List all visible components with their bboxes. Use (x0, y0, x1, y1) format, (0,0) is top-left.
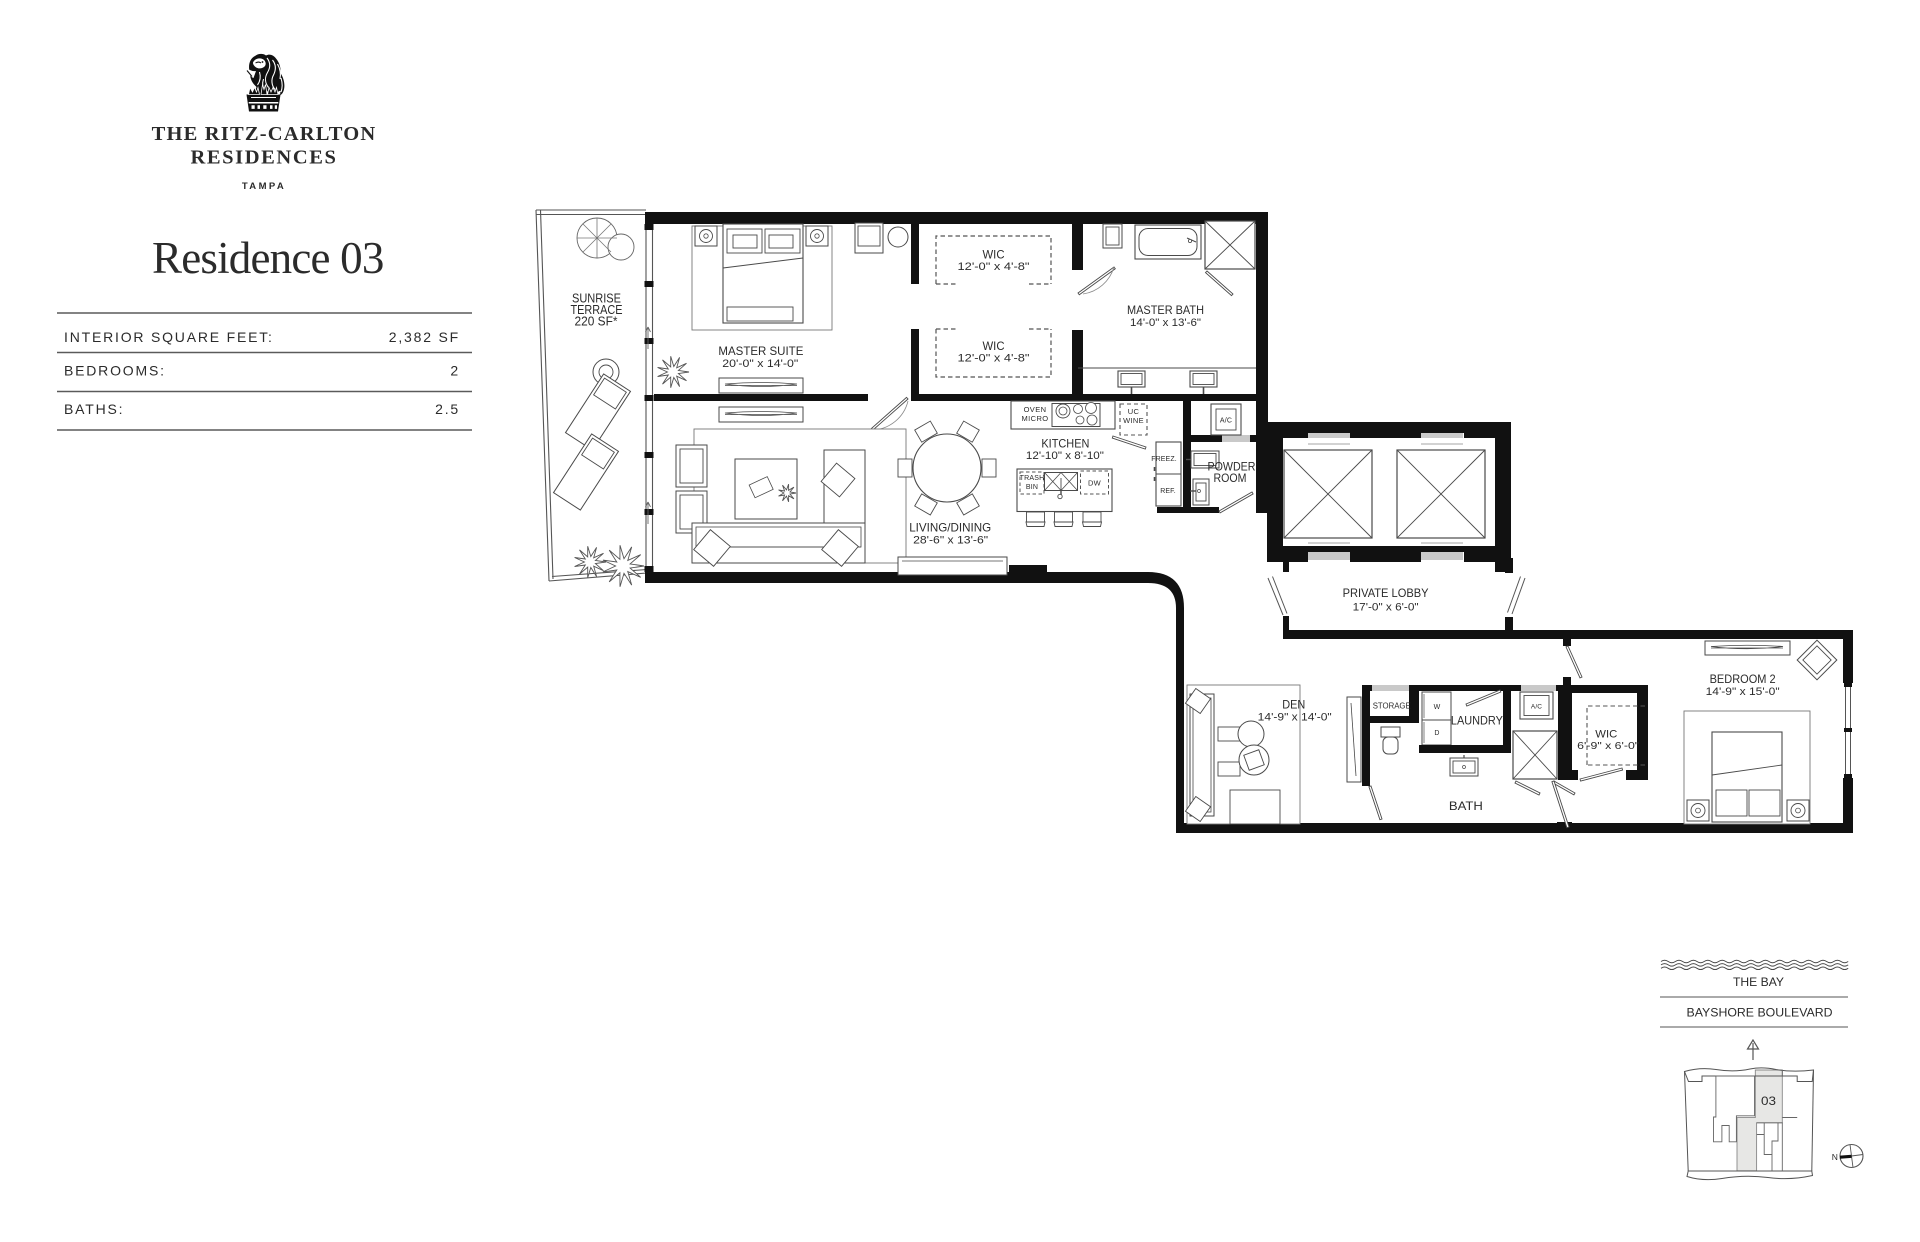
svg-text:WIC: WIC (1595, 729, 1617, 741)
svg-text:A/C: A/C (1220, 418, 1232, 425)
svg-text:UC: UC (1128, 407, 1140, 416)
svg-text:28'-6" x 13'-6": 28'-6" x 13'-6" (913, 535, 988, 547)
svg-text:MASTER BATH: MASTER BATH (1127, 303, 1204, 317)
svg-text:TAMPA: TAMPA (242, 181, 286, 192)
svg-text:BEDROOM 2: BEDROOM 2 (1710, 672, 1776, 686)
svg-text:12'-0" x 4'-8": 12'-0" x 4'-8" (958, 353, 1030, 365)
svg-text:LIVING/DINING: LIVING/DINING (909, 520, 991, 534)
svg-text:ROOM: ROOM (1214, 471, 1247, 485)
svg-text:FREEZ.: FREEZ. (1151, 456, 1177, 463)
svg-text:A/C: A/C (1531, 704, 1542, 711)
svg-text:WIC: WIC (983, 339, 1005, 353)
svg-text:03: 03 (1761, 1096, 1776, 1108)
svg-text:RESIDENCES: RESIDENCES (190, 147, 337, 169)
svg-text:BAYSHORE BOULEVARD: BAYSHORE BOULEVARD (1687, 1006, 1833, 1020)
svg-text:6'-9" x 6'-0": 6'-9" x 6'-0" (1577, 741, 1640, 752)
svg-text:14'-9" x 14'-0": 14'-9" x 14'-0" (1258, 712, 1332, 724)
svg-text:N: N (1832, 1152, 1838, 1162)
svg-text:220 SF*: 220 SF* (575, 314, 618, 329)
svg-text:2: 2 (450, 363, 460, 379)
svg-text:14'-0" x 13'-6": 14'-0" x 13'-6" (1130, 317, 1201, 329)
svg-text:LAUNDRY: LAUNDRY (1451, 714, 1503, 728)
svg-text:BATHS:: BATHS: (64, 401, 124, 417)
svg-text:BATH: BATH (1449, 799, 1483, 813)
svg-text:20'-0" x 14'-0": 20'-0" x 14'-0" (722, 358, 798, 370)
svg-text:THE RITZ-CARLTON: THE RITZ-CARLTON (152, 123, 377, 145)
svg-text:INTERIOR SQUARE FEET:: INTERIOR SQUARE FEET: (64, 329, 274, 345)
svg-text:DEN: DEN (1282, 698, 1305, 712)
svg-text:STORAGE: STORAGE (1373, 702, 1411, 711)
svg-text:REF.: REF. (1160, 488, 1176, 495)
svg-text:MASTER SUITE: MASTER SUITE (718, 344, 803, 358)
svg-text:MICRO: MICRO (1022, 414, 1049, 423)
svg-text:D: D (1434, 730, 1439, 737)
svg-text:14'-9" x 15'-0": 14'-9" x 15'-0" (1706, 686, 1780, 698)
svg-text:17'-0" x 6'-0": 17'-0" x 6'-0" (1353, 602, 1419, 614)
svg-text:Residence 03: Residence 03 (152, 233, 384, 283)
svg-text:W: W (1434, 704, 1441, 711)
svg-text:THE BAY: THE BAY (1733, 975, 1784, 989)
svg-text:12'-0" x 4'-8": 12'-0" x 4'-8" (958, 261, 1030, 273)
svg-text:WIC: WIC (983, 248, 1005, 262)
svg-text:PRIVATE LOBBY: PRIVATE LOBBY (1343, 586, 1429, 600)
svg-text:2,382 SF: 2,382 SF (389, 329, 460, 345)
svg-text:OVEN: OVEN (1024, 405, 1047, 414)
svg-text:12'-10" x 8'-10": 12'-10" x 8'-10" (1026, 450, 1104, 462)
svg-text:KITCHEN: KITCHEN (1041, 436, 1089, 450)
svg-text:2.5: 2.5 (435, 401, 460, 417)
svg-text:BIN: BIN (1026, 484, 1038, 491)
svg-text:TRASH: TRASH (1020, 475, 1045, 482)
svg-text:BEDROOMS:: BEDROOMS: (64, 363, 166, 379)
svg-text:DW: DW (1088, 479, 1102, 488)
svg-text:WINE: WINE (1123, 416, 1144, 425)
